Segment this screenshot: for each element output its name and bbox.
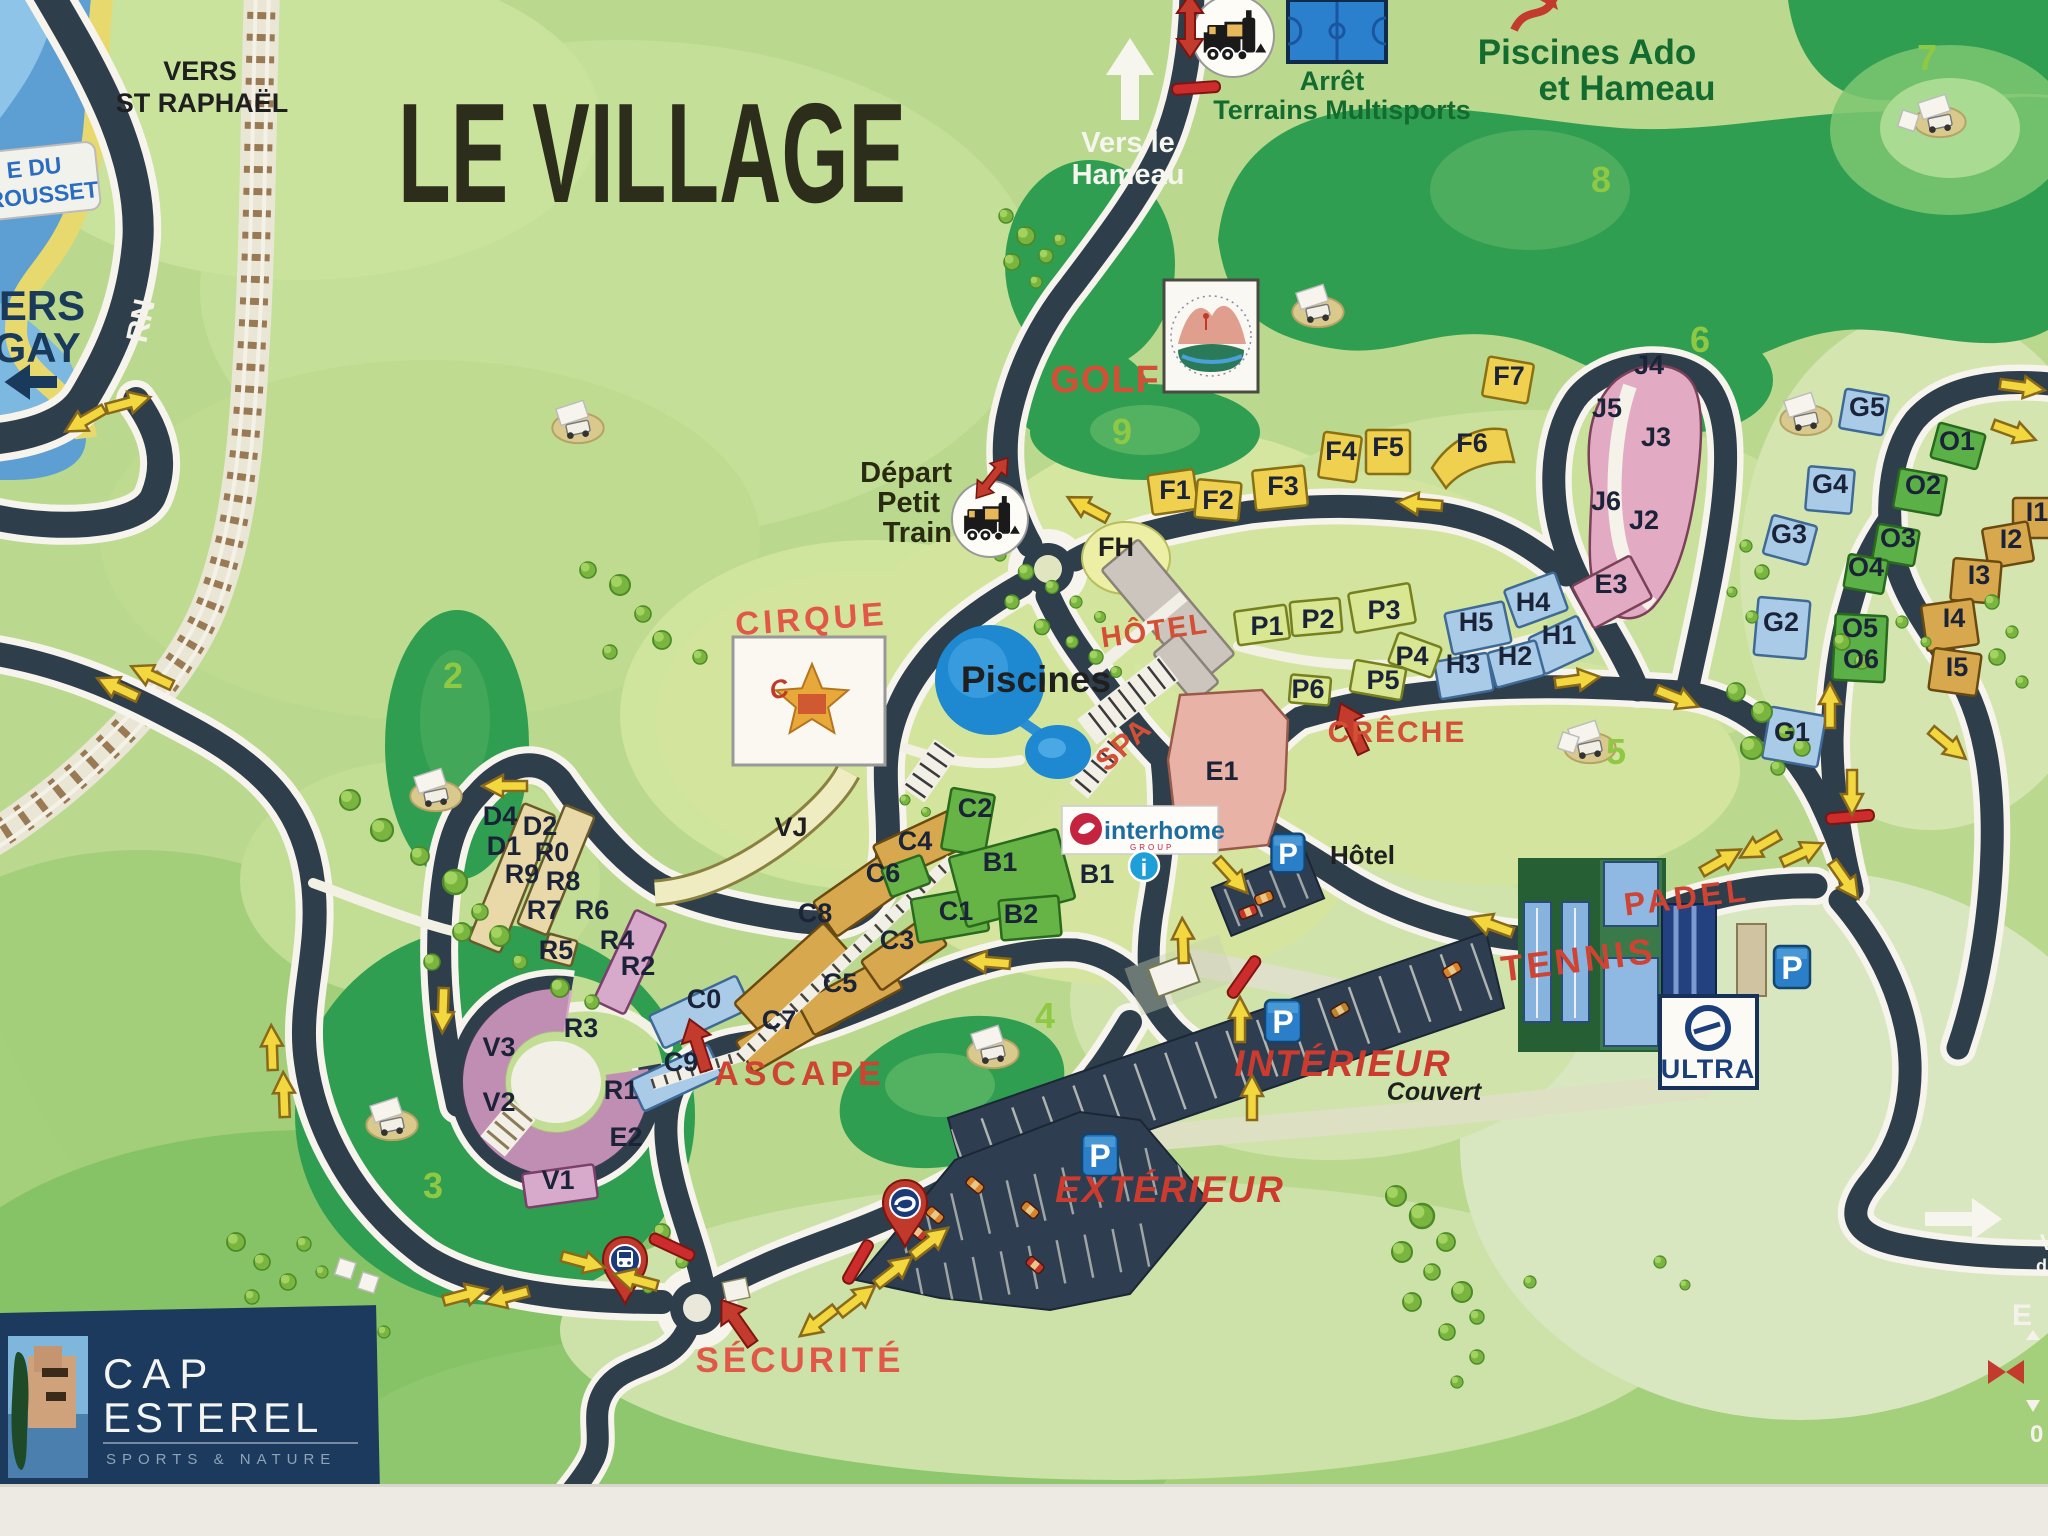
svg-text:ULTRA: ULTRA	[1661, 1054, 1755, 1084]
svg-text:F4: F4	[1325, 436, 1357, 466]
svg-text:ASCAPE: ASCAPE	[714, 1055, 886, 1093]
svg-text:F6: F6	[1456, 428, 1488, 458]
svg-text:O3: O3	[1880, 523, 1916, 553]
svg-text:ESTEREL: ESTEREL	[103, 1394, 322, 1441]
svg-text:AGAY: AGAY	[0, 324, 81, 371]
svg-text:B2: B2	[1004, 899, 1039, 929]
svg-text:E1: E1	[1205, 756, 1238, 786]
svg-text:0: 0	[2030, 1421, 2043, 1448]
svg-text:H4: H4	[1516, 587, 1551, 617]
svg-text:Terrains Multisports: Terrains Multisports	[1213, 95, 1471, 125]
svg-text:P3: P3	[1367, 595, 1400, 625]
svg-text:SÉCURITÉ: SÉCURITÉ	[696, 1340, 905, 1380]
svg-text:C5: C5	[823, 968, 858, 998]
svg-text:O4: O4	[1848, 552, 1884, 582]
svg-text:F5: F5	[1372, 432, 1404, 462]
svg-text:O2: O2	[1905, 470, 1941, 500]
svg-text:P1: P1	[1250, 611, 1283, 641]
svg-text:E3: E3	[1594, 569, 1627, 599]
svg-text:C4: C4	[898, 826, 933, 856]
svg-text:E: E	[2012, 1299, 2032, 1332]
svg-text:V1: V1	[541, 1165, 574, 1195]
svg-text:J3: J3	[1641, 422, 1671, 452]
svg-text:I5: I5	[1946, 652, 1969, 682]
svg-text:C7: C7	[762, 1005, 797, 1035]
svg-text:D4: D4	[483, 801, 518, 831]
svg-text:O6: O6	[1843, 644, 1879, 674]
svg-text:C8: C8	[798, 898, 833, 928]
svg-text:C1: C1	[939, 896, 974, 926]
svg-text:7: 7	[1917, 37, 1937, 78]
svg-text:P6: P6	[1291, 674, 1324, 704]
svg-text:R8: R8	[546, 866, 581, 896]
svg-text:J5: J5	[1592, 393, 1622, 423]
svg-text:VERS: VERS	[163, 56, 237, 86]
svg-text:G4: G4	[1812, 469, 1848, 499]
svg-text:F2: F2	[1202, 485, 1234, 515]
svg-text:VERS: VERS	[0, 282, 85, 329]
svg-text:R6: R6	[575, 895, 610, 925]
svg-text:F1: F1	[1159, 475, 1191, 505]
svg-text:LE VILLAGE: LE VILLAGE	[398, 74, 906, 233]
svg-text:Couvert: Couvert	[1387, 1078, 1483, 1106]
svg-text:O5: O5	[1842, 613, 1878, 643]
svg-text:I3: I3	[1968, 560, 1991, 590]
svg-text:R3: R3	[564, 1013, 599, 1043]
svg-text:Piscines: Piscines	[961, 659, 1111, 700]
svg-text:8: 8	[1591, 159, 1611, 200]
svg-text:CRÊCHE: CRÊCHE	[1328, 715, 1467, 749]
svg-text:CAP: CAP	[103, 1350, 216, 1397]
svg-text:R0: R0	[535, 837, 570, 867]
svg-text:interhome: interhome	[1104, 817, 1225, 845]
svg-text:6: 6	[1690, 319, 1710, 360]
svg-text:V: V	[2040, 1230, 2048, 1255]
svg-text:2: 2	[443, 655, 463, 696]
svg-text:C2: C2	[958, 793, 993, 823]
svg-text:C3: C3	[880, 925, 915, 955]
svg-text:Hameau: Hameau	[1072, 159, 1185, 191]
svg-text:I4: I4	[1943, 603, 1966, 633]
svg-text:ST RAPHAËL: ST RAPHAËL	[116, 88, 289, 118]
svg-text:I1: I1	[2026, 497, 2048, 527]
svg-text:B1: B1	[983, 847, 1018, 877]
svg-text:V3: V3	[482, 1032, 515, 1062]
svg-text:3: 3	[423, 1165, 443, 1206]
svg-text:C6: C6	[866, 858, 901, 888]
svg-text:R5: R5	[539, 935, 574, 965]
svg-text:R7: R7	[527, 895, 562, 925]
svg-text:Vers le: Vers le	[1081, 127, 1175, 159]
svg-text:J4: J4	[1634, 350, 1664, 380]
svg-text:GOLF: GOLF	[1050, 359, 1160, 401]
svg-text:i: i	[1141, 855, 1148, 882]
svg-text:5: 5	[1606, 731, 1626, 772]
svg-text:G1: G1	[1774, 717, 1810, 747]
svg-text:I2: I2	[2000, 524, 2023, 554]
svg-text:Départ: Départ	[860, 457, 952, 489]
svg-text:H1: H1	[1542, 620, 1577, 650]
svg-text:V2: V2	[482, 1087, 515, 1117]
svg-text:EXTÉRIEUR: EXTÉRIEUR	[1055, 1169, 1285, 1210]
svg-text:P2: P2	[1301, 604, 1334, 634]
svg-text:Petit: Petit	[877, 487, 940, 519]
svg-text:E2: E2	[609, 1122, 642, 1152]
svg-text:Arrêt: Arrêt	[1300, 66, 1365, 96]
svg-text:J6: J6	[1591, 486, 1621, 516]
svg-text:4: 4	[1035, 995, 1055, 1036]
svg-text:G5: G5	[1849, 392, 1885, 422]
svg-text:H2: H2	[1498, 641, 1533, 671]
svg-text:R1: R1	[604, 1075, 639, 1105]
svg-text:R2: R2	[621, 951, 656, 981]
svg-text:d: d	[2036, 1256, 2047, 1276]
svg-text:C9: C9	[664, 1047, 699, 1077]
svg-text:FH: FH	[1098, 532, 1134, 562]
svg-text:P4: P4	[1395, 641, 1428, 671]
svg-text:VJ: VJ	[774, 812, 807, 842]
svg-text:H3: H3	[1446, 649, 1481, 679]
svg-text:R9: R9	[505, 859, 540, 889]
svg-text:B1: B1	[1080, 859, 1115, 889]
svg-text:Piscines Ado: Piscines Ado	[1478, 33, 1697, 72]
svg-text:9: 9	[1112, 411, 1132, 452]
svg-text:D1: D1	[487, 831, 522, 861]
svg-text:H5: H5	[1459, 607, 1494, 637]
svg-text:G2: G2	[1763, 607, 1799, 637]
svg-text:J2: J2	[1629, 505, 1659, 535]
svg-text:P5: P5	[1366, 665, 1399, 695]
svg-text:SPORTS & NATURE: SPORTS & NATURE	[106, 1451, 336, 1468]
svg-text:C0: C0	[687, 984, 722, 1014]
svg-text:G3: G3	[1771, 519, 1807, 549]
svg-text:GROUP: GROUP	[1130, 843, 1174, 852]
svg-text:Hôtel: Hôtel	[1330, 840, 1395, 870]
svg-text:et Hameau: et Hameau	[1538, 69, 1715, 108]
svg-text:Train: Train	[883, 517, 952, 549]
svg-text:O1: O1	[1939, 426, 1975, 456]
svg-text:F3: F3	[1267, 471, 1299, 501]
svg-text:F7: F7	[1493, 361, 1525, 391]
